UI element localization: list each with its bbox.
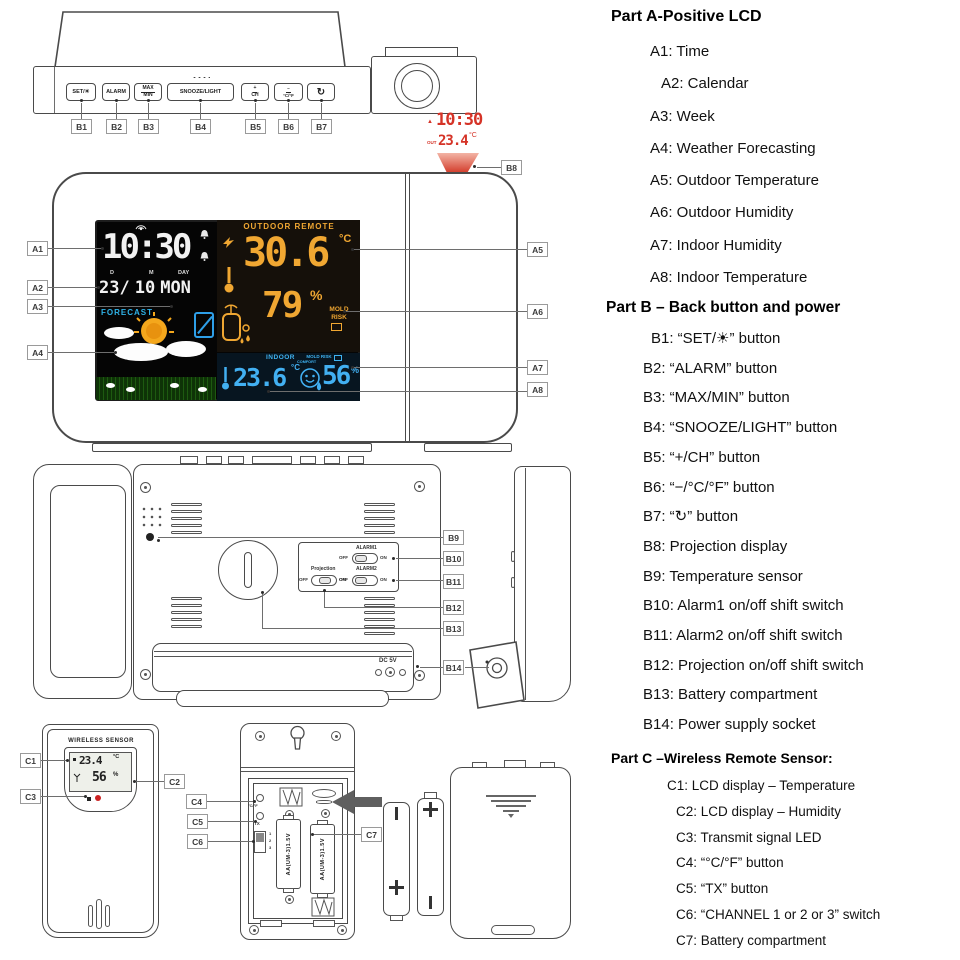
alarm2-switch: [352, 575, 378, 586]
leader-line: [207, 801, 254, 802]
callout-c4: C4: [186, 794, 207, 809]
front-foot: [424, 443, 512, 452]
legend-item-b8: B8: Projection display: [643, 532, 864, 562]
projection-switch: [311, 575, 337, 586]
callout-c3: C3: [20, 789, 41, 804]
lcd-indoor-header: INDOOR: [266, 355, 295, 362]
leader-line: [396, 558, 443, 559]
projection-out-label: OUT: [427, 141, 437, 146]
leader-line: [262, 628, 443, 629]
legend-item-a8: A8: Indoor Temperature: [650, 262, 819, 294]
screw-icon: [337, 925, 347, 935]
callout-b5: B5: [245, 119, 266, 134]
alarm1-bell-icon: [199, 229, 210, 240]
leader-line: [208, 821, 255, 822]
leader-line: [270, 391, 527, 392]
callout-c2: C2: [164, 774, 185, 789]
side-bracket: [466, 638, 528, 710]
sensor-signal-icon: [72, 773, 82, 783]
remote-sensor-icon: [220, 298, 256, 346]
legend-item-c3: C3: Transmit signal LED: [676, 825, 880, 851]
transmit-led: [95, 795, 101, 801]
side-button-bump: [511, 577, 515, 588]
lcd-date-d-label: D: [110, 271, 114, 277]
legend-item-b4: B4: “SNOOZE/LIGHT” button: [643, 413, 864, 443]
sensor-lcd-temp: 23.4: [79, 755, 102, 766]
screw-icon: [285, 895, 294, 904]
channel-3: 3: [269, 846, 271, 850]
screw-icon: [140, 482, 151, 493]
snooze-speaker-dots: [192, 76, 210, 79]
battery-spring: [311, 897, 335, 917]
callout-b10: B10: [443, 551, 464, 566]
legend-part-a-title: Part A-Positive LCD: [611, 8, 762, 26]
product-diagram: SET/☀ ALARM MAXMIN SNOOZE/LIGHT +CH −°C/…: [0, 0, 960, 960]
projection-temp-unit: °C: [469, 132, 477, 139]
alarm2-bell-icon: [199, 251, 210, 262]
lcd-flower: [126, 387, 135, 392]
leader-line: [135, 781, 164, 782]
callout-a4: A4: [27, 345, 48, 360]
lcd-indoor-temp: 23.6: [233, 365, 285, 390]
battery-minus-mark: [429, 896, 432, 909]
screw-icon: [414, 670, 425, 681]
lcd-indoor-mold-label: MOLD RISK: [306, 354, 332, 359]
leader-line: [477, 167, 501, 168]
callout-b6: B6: [278, 119, 299, 134]
screw-icon: [321, 809, 330, 818]
screw-icon: [255, 731, 265, 741]
cf-button: [256, 794, 264, 802]
legend-item-c4: C4: “°C/°F” button: [676, 850, 880, 876]
leader-line: [208, 841, 253, 842]
leader-line: [396, 580, 443, 581]
legend-item-a2: A2: Calendar: [661, 68, 819, 100]
wind-icon: [221, 235, 236, 250]
lcd-outdoor-humidity-unit: %: [310, 288, 322, 302]
tx-button: [256, 812, 264, 820]
legend-item-a7: A7: Indoor Humidity: [650, 230, 819, 262]
leader-line: [313, 834, 361, 835]
legend-item-c1: C1: LCD display – Temperature: [667, 773, 880, 799]
channel-2: 2: [269, 839, 271, 843]
legend-part-b-title: Part B – Back button and power: [606, 299, 840, 317]
legend-item-a5: A5: Outdoor Temperature: [650, 165, 819, 197]
front-divider: [409, 174, 410, 442]
legend-item-a1: A1: Time: [650, 36, 819, 68]
projection-temp: 23.4: [438, 134, 468, 148]
temperature-sensor: [146, 533, 154, 541]
battery-minus-mark: [395, 807, 398, 820]
alarm2-label: ALARM2: [356, 567, 377, 572]
lcd-comfort-label: COMFORT: [297, 361, 316, 365]
top-view-stand: [50, 10, 350, 70]
legend-item-a6: A6: Outdoor Humidity: [650, 197, 819, 229]
sensor-lcd-humidity: 56: [92, 771, 106, 784]
battery-terminal: [390, 915, 403, 921]
battery-cover: [450, 767, 571, 939]
lcd-flower: [198, 387, 207, 392]
legend-item-b11: B11: Alarm2 on/off shift switch: [643, 621, 864, 651]
legend-item-a4: A4: Weather Forecasting: [650, 133, 819, 165]
legend-item-b2: B2: “ALARM” button: [643, 354, 864, 384]
legend-item-b13: B13: Battery compartment: [643, 680, 864, 710]
battery-slot-1: AA(UM-3)1.5V: [276, 819, 301, 889]
legend-item-c7: C7: Battery compartment: [676, 928, 880, 954]
legend-item-a3: A3: Week: [650, 101, 819, 133]
lcd-date-day-label: DAY: [178, 271, 189, 277]
battery-door-slot: [244, 552, 252, 588]
lcd-flower: [170, 383, 179, 388]
hanging-hole-icon: [289, 725, 307, 753]
projector-lens-inner: [401, 70, 433, 102]
lcd-outdoor-temp-unit: °C: [339, 234, 351, 245]
lcd-time: 10:30: [102, 230, 189, 264]
lcd-date-m-label: M: [149, 271, 154, 277]
legend-part-b-items: B1: “SET/☀” button B2: “ALARM” button B3…: [643, 324, 864, 740]
battery-plus-mark: [395, 880, 398, 895]
legend-item-b5: B5: “+/CH” button: [643, 443, 864, 473]
rotate-icon: ↻: [317, 87, 325, 98]
callout-c7: C7: [361, 827, 382, 842]
cover-handle: [491, 925, 535, 935]
leader-line: [324, 592, 325, 607]
battery-plus-mark: [429, 802, 432, 817]
legend-item-b12: B12: Projection on/off shift switch: [643, 651, 864, 681]
screw-icon: [414, 481, 425, 492]
leader-line: [255, 103, 256, 119]
leader-line: [200, 103, 201, 119]
projection-time: 10:30: [436, 112, 482, 129]
callout-c5: C5: [187, 814, 208, 829]
back-stand-lip: [176, 690, 389, 707]
legend-item-b10: B10: Alarm1 on/off shift switch: [643, 591, 864, 621]
leader-line: [420, 667, 443, 668]
top-view-edge-line: [54, 67, 55, 113]
callout-a5: A5: [527, 242, 548, 257]
legend-part-c-items: C1: LCD display – Temperature C2: LCD di…: [676, 773, 880, 954]
legend-item-b1: B1: “SET/☀” button: [651, 324, 864, 354]
sensor-lcd-humidity-unit: %: [113, 772, 118, 778]
leader-line: [148, 103, 149, 119]
projection-label: Projection: [311, 567, 335, 572]
side-button-bump: [511, 551, 515, 562]
power-socket-icon: [375, 669, 382, 676]
projection-alarm-marker: ▲: [427, 119, 433, 125]
legend-item-c2: C2: LCD display – Humidity: [676, 799, 880, 825]
screw-icon: [140, 669, 151, 680]
callout-b7: B7: [311, 119, 332, 134]
callout-b13: B13: [443, 621, 464, 636]
sensor-title: WIRELESS SENSOR: [57, 738, 145, 744]
callout-c1: C1: [20, 753, 41, 768]
legend-part-a-items: A1: Time A2: Calendar A3: Week A4: Weath…: [650, 36, 819, 294]
legend-item-b3: B3: “MAX/MIN” button: [643, 383, 864, 413]
callout-c6: C6: [187, 834, 208, 849]
callout-a6: A6: [527, 304, 548, 319]
channel-1: 1: [269, 832, 271, 836]
legend-item-b7: B7: “↻” button: [643, 502, 864, 532]
leader-line: [288, 103, 289, 119]
mold-box-icon: [331, 323, 342, 331]
callout-b11: B11: [443, 574, 464, 589]
leader-line: [353, 367, 527, 368]
leader-line: [41, 760, 68, 761]
callout-b2: B2: [106, 119, 127, 134]
cf-button-label: °C/°F: [248, 804, 258, 808]
leader-line: [324, 607, 443, 608]
alarm1-switch: [352, 553, 378, 564]
alarm1-label: ALARM1: [356, 546, 377, 551]
lcd-flower: [106, 383, 115, 388]
callout-a1: A1: [27, 241, 48, 256]
back-dot-grid: [140, 505, 162, 527]
insert-arrow-icon: [330, 788, 382, 816]
callout-a7: A7: [527, 360, 548, 375]
leader-line: [262, 594, 263, 628]
battery-type-text: AA(UM-3)1.5V: [320, 838, 326, 880]
leader-line: [48, 287, 99, 288]
legend-item-c5: C5: “TX” button: [676, 876, 880, 902]
callout-b12: B12: [443, 600, 464, 615]
leader-line: [353, 249, 527, 250]
lcd-date-row: 23/ 10 MON: [99, 278, 217, 298]
callout-a2: A2: [27, 280, 48, 295]
lcd-weather-icon: [97, 310, 215, 372]
leader-line: [81, 103, 82, 119]
lcd-indoor-humidity: 56: [322, 363, 349, 389]
battery-type-text: AA(UM-3)1.5V: [286, 833, 292, 875]
callout-b1: B1: [71, 119, 92, 134]
lcd-outdoor-humidity: 79: [262, 288, 301, 324]
lcd-outdoor-mold-label: MOLD RISK: [322, 306, 356, 322]
legend-item-b9: B9: Temperature sensor: [643, 562, 864, 592]
callout-b8: B8: [501, 160, 522, 175]
lcd-outdoor-temp: 30.6: [243, 233, 327, 273]
leader-line: [116, 103, 117, 119]
leader-line: [48, 306, 172, 307]
front-divider: [405, 174, 406, 442]
leader-line: [158, 537, 443, 538]
legend-item-b14: B14: Power supply socket: [643, 710, 864, 740]
callout-a8: A8: [527, 382, 548, 397]
power-socket-icon: [399, 669, 406, 676]
callout-b3: B3: [138, 119, 159, 134]
leader-line: [321, 103, 322, 119]
outdoor-thermometer-icon: [223, 264, 235, 294]
callout-b14: B14: [443, 660, 464, 675]
front-foot: [92, 443, 372, 452]
callout-b4: B4: [190, 119, 211, 134]
sensor-lcd-temp-unit: °C: [113, 755, 119, 761]
callout-a3: A3: [27, 299, 48, 314]
dc5v-label: DC 5V: [379, 658, 397, 664]
indoor-thermometer-icon: [221, 364, 230, 392]
battery-spring: [279, 787, 303, 807]
leader-line: [465, 667, 489, 668]
legend-part-c-title: Part C –Wireless Remote Sensor:: [611, 750, 833, 766]
legend-item-c6: C6: “CHANNEL 1 or 2 or 3” switch: [676, 902, 880, 928]
legend-item-b6: B6: “−/°C/°F” button: [643, 473, 864, 503]
leader-line: [345, 311, 527, 312]
leader-line: [48, 352, 116, 353]
callout-b9: B9: [443, 530, 464, 545]
screw-icon: [331, 731, 341, 741]
screw-icon: [249, 925, 259, 935]
leader-line: [41, 796, 85, 797]
power-socket-icon: [385, 667, 395, 677]
leader-line: [48, 248, 103, 249]
side-view-left-inner: [50, 485, 126, 678]
